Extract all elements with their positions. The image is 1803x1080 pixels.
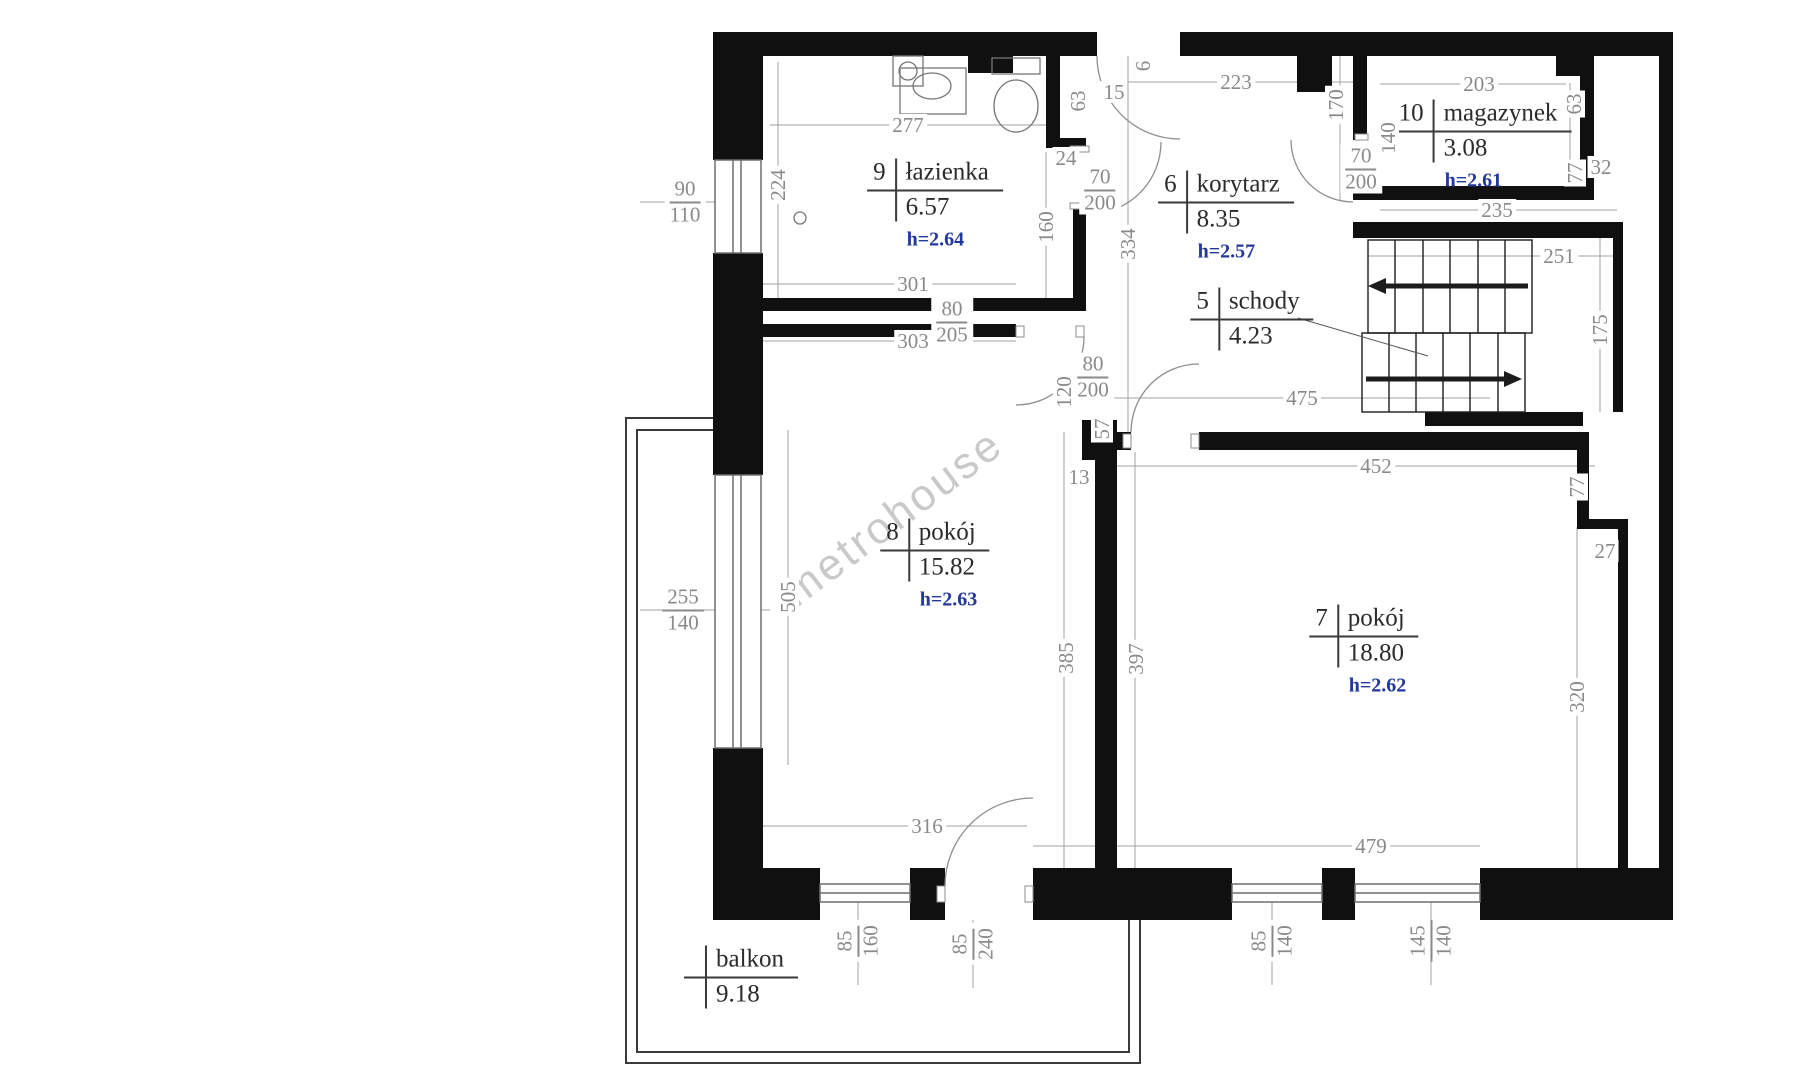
room-number: 6 (1158, 171, 1188, 204)
opening-size-label: 255 140 (662, 585, 704, 634)
room-label: 7 pokój 18.80 h=2.62 (1309, 605, 1418, 698)
opening-width: 80 (1078, 352, 1109, 378)
opening-width: 70 (1346, 144, 1377, 170)
dimension-label: 63 (1563, 91, 1585, 118)
dimension-label: 303 (894, 330, 932, 352)
opening-width: 90 (669, 177, 700, 203)
opening-height: 200 (1072, 378, 1114, 402)
dimension-label: 32 (1588, 156, 1615, 178)
dimension-label: 57 (1091, 416, 1113, 443)
dimension-label: 475 (1283, 387, 1321, 409)
dimension-label: 223 (1217, 71, 1255, 93)
room-number: 5 (1190, 288, 1220, 321)
opening-size-label: 70 200 (1079, 165, 1121, 214)
room-name: magazynek (1435, 100, 1572, 133)
room-label: 6 korytarz 8.35 h=2.57 (1158, 171, 1294, 264)
room-height: h=2.64 (897, 222, 965, 252)
dimension-label: 170 (1325, 86, 1347, 124)
sink-cabinet-icon (900, 68, 966, 114)
dimension-label: 316 (908, 815, 946, 837)
dimension-label: 277 (889, 114, 927, 136)
room-area: 8.35 (1186, 204, 1241, 234)
opening-width: 70 (1085, 165, 1116, 191)
room-height: h=2.61 (1435, 163, 1503, 193)
opening-height: 140 (1273, 920, 1297, 962)
opening-size-label: 90 110 (665, 177, 706, 226)
room-label: 5 schody 4.23 (1190, 288, 1313, 351)
dimension-label: 175 (1589, 311, 1611, 349)
dimension-label: 251 (1540, 245, 1578, 267)
opening-size-label: 80 205 (931, 297, 973, 346)
room-height: h=2.62 (1339, 668, 1407, 698)
dimension-label: 320 (1566, 678, 1588, 716)
room-number: 8 (880, 519, 910, 552)
room-height: h=2.57 (1188, 234, 1256, 264)
opening-height: 240 (974, 923, 998, 965)
opening-size-label: 85 240 (948, 923, 997, 965)
room-label: 9 łazienka 6.57 h=2.64 (867, 159, 1003, 252)
stairs (1298, 240, 1532, 412)
dimension-label: 77 (1564, 160, 1586, 187)
room-label: 10 magazynek 3.08 h=2.61 (1393, 100, 1572, 193)
opening-size-label: 145 140 (1406, 920, 1455, 962)
opening-width: 145 (1406, 920, 1432, 962)
dimension-label: 77 (1566, 474, 1588, 501)
opening-width: 85 (1247, 926, 1273, 957)
dimension-label: 224 (767, 166, 789, 204)
room-name: łazienka (897, 159, 1003, 192)
room-label: 8 pokój 15.82 h=2.63 (880, 519, 989, 612)
floor-drain-icon (794, 212, 806, 224)
dimension-label: 235 (1478, 199, 1516, 221)
opening-width: 85 (948, 929, 974, 960)
room-area: 6.57 (895, 192, 950, 222)
room-area: 4.23 (1218, 321, 1273, 351)
opening-width: 255 (662, 585, 704, 611)
room-name: korytarz (1188, 171, 1294, 204)
room-number (684, 946, 707, 979)
opening-height: 110 (665, 203, 706, 227)
dimension-label: 63 (1067, 88, 1089, 115)
toilet-bowl-icon (994, 80, 1038, 132)
opening-size-label: 85 160 (833, 920, 882, 962)
dimension-label: 334 (1117, 225, 1139, 263)
opening-size-label: 80 200 (1072, 352, 1114, 401)
dimension-label: 15 (1101, 81, 1128, 103)
opening-size-label: 85 140 (1247, 920, 1296, 962)
room-label: balkon 9.18 (684, 946, 798, 1009)
washing-machine-icon (893, 56, 923, 86)
room-area: 3.08 (1433, 133, 1488, 163)
dimension-label: 160 (1035, 208, 1057, 246)
room-area: 18.80 (1337, 638, 1404, 668)
opening-size-label: 70 200 (1340, 144, 1382, 193)
opening-height: 200 (1340, 170, 1382, 194)
room-number: 7 (1309, 605, 1339, 638)
room-name: schody (1220, 288, 1314, 321)
floorplan-canvas: metrohouse 9 łazienka 6.57 h=2.64 6 kory… (0, 0, 1803, 1080)
room-number: 9 (867, 159, 897, 192)
dimension-label: 505 (777, 578, 799, 616)
opening-height: 140 (662, 611, 704, 635)
dimension-label: 6 (1132, 58, 1154, 75)
dimension-label: 203 (1460, 73, 1498, 95)
dimension-label: 452 (1357, 455, 1395, 477)
room-area: 9.18 (705, 979, 760, 1009)
opening-height: 205 (931, 323, 973, 347)
room-name: pokój (910, 519, 990, 552)
dimension-label: 24 (1053, 147, 1080, 169)
dimension-label: 397 (1125, 640, 1147, 678)
opening-width: 85 (833, 926, 859, 957)
room-name: balkon (707, 946, 798, 979)
opening-height: 140 (1432, 920, 1456, 962)
opening-width: 80 (937, 297, 968, 323)
opening-height: 160 (859, 920, 883, 962)
room-name: pokój (1339, 605, 1419, 638)
room-height: h=2.63 (910, 582, 978, 612)
dimension-label: 479 (1352, 835, 1390, 857)
dimension-label: 27 (1592, 540, 1619, 562)
opening-height: 200 (1079, 191, 1121, 215)
room-area: 15.82 (908, 552, 975, 582)
dimension-label: 385 (1055, 639, 1077, 677)
dimension-label: 13 (1066, 466, 1093, 488)
dimension-label: 301 (894, 273, 932, 295)
